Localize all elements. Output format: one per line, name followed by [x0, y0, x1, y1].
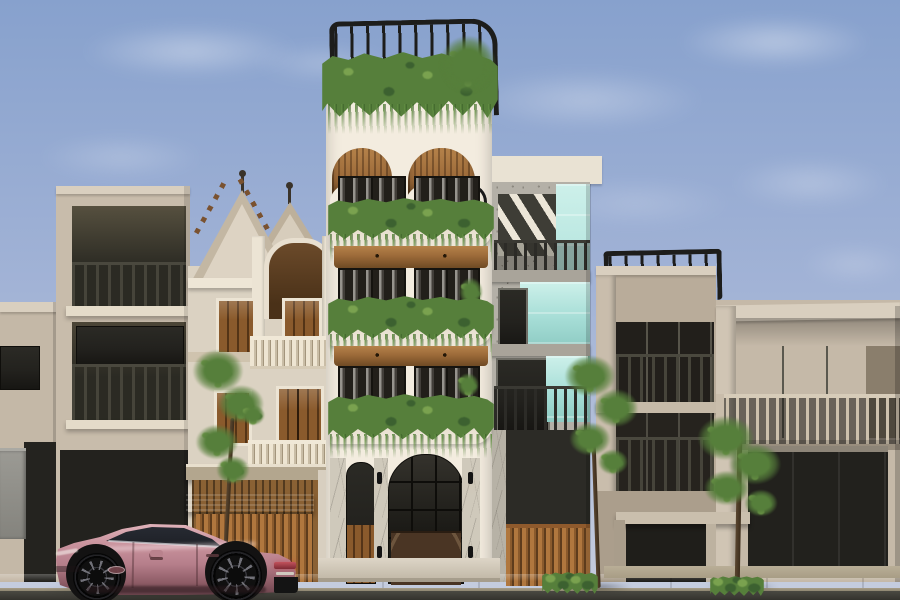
teal-roof-slab — [490, 156, 602, 184]
tower-sconce — [377, 472, 382, 484]
building-teal-house — [488, 156, 618, 582]
right-house-eave-shadow — [716, 318, 900, 346]
right-house-right-edge — [895, 306, 900, 582]
car-rear-diffuser — [274, 577, 298, 593]
left-low-parapet — [0, 302, 58, 312]
tower-woodband-f1 — [334, 246, 488, 268]
car-rear-chrome-strip — [276, 572, 294, 575]
classical-cornice — [186, 464, 336, 480]
right-house-garage — [748, 452, 888, 570]
mid-tower-railing-lower — [616, 437, 714, 494]
car-door-seam — [196, 544, 198, 586]
tower-potplant-f3 — [454, 370, 482, 400]
parked-car — [46, 520, 302, 600]
tower-woodband-f2 — [334, 346, 488, 366]
car-taillight-bar — [274, 562, 296, 569]
car-mirror — [150, 550, 163, 557]
tower-entry-platform — [318, 558, 500, 582]
tower-vines-f3 — [330, 434, 492, 458]
left-tall-railing-upper — [72, 262, 186, 311]
teal-window-mid — [498, 288, 528, 350]
tower-sconce — [377, 546, 382, 558]
left-tall-slab-lower — [66, 420, 190, 429]
tower-sconce — [468, 546, 473, 558]
car-rocker-shadow — [86, 586, 266, 593]
tower-sconce — [468, 472, 473, 484]
tower-roof-shrub — [432, 28, 504, 102]
sidewalk-upper-right — [604, 566, 900, 578]
teal-balcony-railing-lower — [494, 386, 590, 433]
mid-tower-railing-upper — [616, 354, 714, 405]
car-door-handle — [206, 554, 219, 557]
right-house-balcony-post — [716, 394, 724, 440]
teal-ground-recess — [496, 430, 590, 530]
street-render-scene — [0, 0, 900, 600]
car-charge-vent — [108, 566, 125, 574]
mid-tower-bay-upper — [616, 322, 714, 402]
left-tall-slab-upper — [66, 306, 190, 316]
classical-shutter-lower-left — [214, 390, 252, 446]
teal-slab-2 — [490, 344, 590, 356]
classical-balustrade-upper — [250, 336, 334, 369]
left-low-window — [0, 346, 40, 390]
cloud — [640, 6, 900, 78]
tower-roof-vines — [328, 104, 494, 134]
teal-edge-shadow — [586, 184, 591, 582]
utility-box — [0, 448, 26, 539]
left-tall-balcony-lower — [72, 322, 186, 422]
left-tall-railing-lower — [72, 364, 186, 425]
left-tall-balcony-upper — [72, 206, 186, 308]
classical-spire-ball-left — [239, 170, 246, 177]
carport-beam — [616, 512, 750, 524]
car-door-handle — [150, 557, 163, 560]
car-front-intake — [54, 566, 80, 572]
building-right-house — [716, 300, 900, 582]
classical-awning — [186, 494, 314, 512]
left-tall-window — [76, 326, 184, 366]
left-tall-parapet — [56, 186, 190, 194]
teal-slab-1 — [490, 270, 590, 282]
teal-panel-mid — [520, 282, 590, 346]
classical-spire-ball-right — [286, 182, 293, 189]
mid-tower-bay-lower — [616, 413, 714, 491]
